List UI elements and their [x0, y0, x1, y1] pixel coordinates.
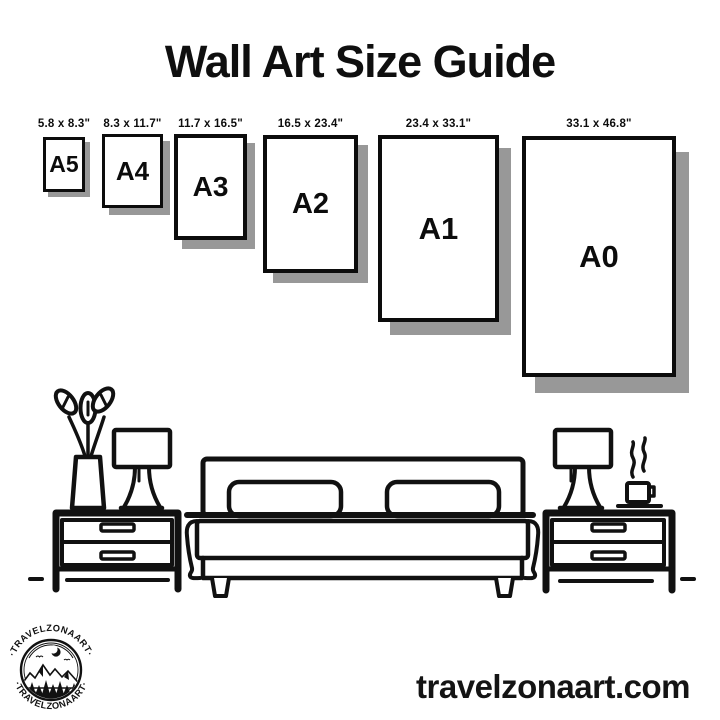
flower-vase-icon [52, 385, 117, 508]
brand-logo: ·TRAVELZONAART· ·TRAVELZONAART· [2, 621, 98, 720]
bedroom-illustration [0, 0, 720, 720]
website-url: travelzonaart.com [398, 668, 708, 706]
coffee-cup-icon [618, 438, 661, 506]
table-lamp-left-icon [114, 430, 170, 508]
nightstand-right-icon [546, 513, 672, 590]
nightstand-left-icon [56, 513, 178, 589]
table-lamp-right-icon [555, 430, 611, 508]
bed-icon [187, 459, 538, 596]
